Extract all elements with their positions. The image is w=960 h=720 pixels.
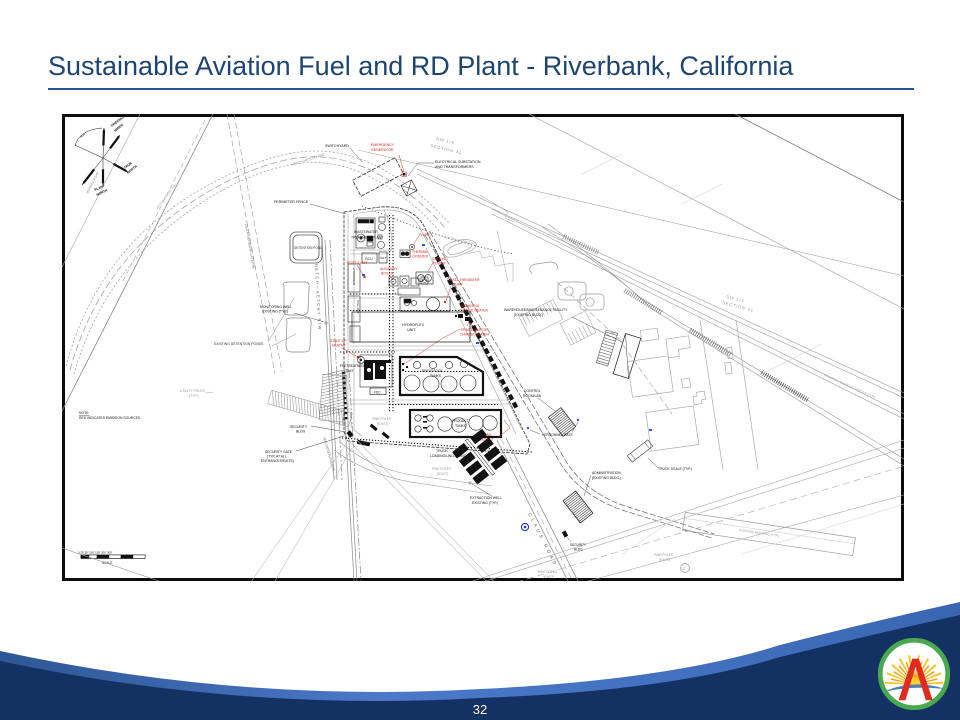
svg-text:COOLING: COOLING	[432, 257, 448, 261]
svg-text:DEWAXING: DEWAXING	[461, 304, 480, 308]
svg-text:PRODUCT: PRODUCT	[452, 419, 469, 423]
svg-text:RO/EDI UNIT: RO/EDI UNIT	[347, 261, 368, 265]
svg-text:SECURITY: SECURITY	[290, 425, 308, 429]
svg-text:SECTION 31: SECTION 31	[430, 143, 463, 155]
svg-text:FLARE: FLARE	[419, 233, 431, 237]
svg-text:UNIT: UNIT	[407, 328, 416, 332]
svg-text:PWR POLES: PWR POLES	[432, 467, 451, 471]
svg-text:ENTRANCES/EXITS): ENTRANCES/EXITS)	[261, 459, 294, 463]
svg-text:HYDROFLEX: HYDROFLEX	[402, 323, 425, 327]
svg-text:ROOM/LAB: ROOM/LAB	[523, 394, 542, 398]
svg-text:EXISTING SIDING (TYP): EXISTING SIDING (TYP)	[444, 235, 476, 245]
svg-text:PERSONNEL GATE: PERSONNEL GATE	[542, 433, 573, 437]
svg-text:SECURITY GATE: SECURITY GATE	[265, 450, 293, 454]
svg-text:VAN DUSEN AVENUE: VAN DUSEN AVENUE	[322, 436, 336, 472]
svg-text:WASTEWATER: WASTEWATER	[354, 230, 378, 234]
svg-text:RED INDICATES EMISSION SOUR: RED INDICATES EMISSION SOURCES.	[79, 416, 141, 420]
svg-text:GENERATOR: GENERATOR	[371, 148, 394, 152]
svg-text:PUMP: PUMP	[453, 283, 464, 287]
svg-text:OXIDIZER: OXIDIZER	[412, 255, 429, 259]
svg-text:(EXIST): (EXIST)	[377, 422, 388, 426]
svg-text:(EXISTING BLDG.): (EXISTING BLDG.)	[592, 476, 621, 480]
svg-text:MONITORING WELL: MONITORING WELL	[260, 305, 292, 309]
svg-text:PERIMETER FENCE: PERIMETER FENCE	[274, 200, 309, 204]
svg-text:SWITCHYARD: SWITCHYARD	[325, 144, 349, 148]
svg-text:UTILITY POLES: UTILITY POLES	[180, 389, 206, 393]
svg-text:TANKS: TANKS	[455, 424, 467, 428]
svg-text:START-UP: START-UP	[330, 339, 347, 343]
svg-text:TRUCK SCALE (TYP.): TRUCK SCALE (TYP.)	[658, 467, 692, 471]
svg-text:(TYP. AT ALL: (TYP. AT ALL	[267, 455, 287, 459]
svg-text:UNIT: UNIT	[346, 369, 353, 373]
svg-text:EXISTING DETENTION PONDS: EXISTING DETENTION PONDS	[214, 342, 264, 346]
svg-text:HEATER: HEATER	[332, 344, 346, 348]
svg-text:BLDG: BLDG	[296, 430, 306, 434]
svg-text:(EXIST): (EXIST)	[437, 472, 448, 476]
svg-text:(TYP.): (TYP.)	[189, 394, 198, 398]
svg-text:AND TRANSFORMERS: AND TRANSFORMERS	[435, 165, 474, 169]
svg-text:NW 1/4: NW 1/4	[436, 136, 455, 145]
svg-text:EXISTING (TYP.): EXISTING (TYP.)	[262, 310, 288, 314]
svg-text:EMERGENCY: EMERGENCY	[371, 143, 395, 147]
svg-text:CHARGE HEATER: CHARGE HEATER	[460, 333, 490, 337]
svg-text:PRETREATMENT: PRETREATMENT	[340, 364, 366, 368]
svg-text:DIESEL FIREWATER: DIESEL FIREWATER	[447, 278, 480, 282]
svg-text:OLD RIVERBANK LATERAL: OLD RIVERBANK LATERAL	[244, 223, 256, 269]
svg-text:TRUCK: TRUCK	[436, 449, 448, 453]
svg-text:0 25' 50' 100' 150' 200: 0 25' 50' 100' 150' 200' 300'	[78, 551, 113, 555]
svg-text:EXISTING RAILROAD TRACKS (TYP.: EXISTING RAILROAD TRACKS (TYP.)	[824, 373, 876, 399]
svg-text:FDC: FDC	[374, 391, 381, 395]
svg-text:FEEDSTOCK: FEEDSTOCK	[422, 369, 443, 373]
svg-text:SGT: SGT	[380, 256, 386, 260]
svg-text:SECURITY: SECURITY	[570, 543, 587, 547]
svg-text:HETCH-HETCHY R/W: HETCH-HETCHY R/W	[291, 152, 326, 167]
svg-text:PWR POLES: PWR POLES	[372, 417, 391, 421]
svg-text:ELECTRICAL SUBSTATION: ELECTRICAL SUBSTATION	[435, 160, 481, 164]
svg-text:THERMAL: THERMAL	[412, 250, 428, 254]
svg-text:CONTROL: CONTROL	[524, 389, 541, 393]
svg-text:PWR POLES: PWR POLES	[654, 553, 673, 557]
svg-text:TREATMENT PLANT: TREATMENT PLANT	[351, 236, 383, 240]
svg-text:BOILER: BOILER	[381, 272, 394, 276]
svg-text:TANKS: TANKS	[430, 374, 442, 378]
svg-text:EXISTING (TYP.): EXISTING (TYP.)	[472, 501, 498, 505]
svg-text:DETENTION POND: DETENTION POND	[294, 246, 323, 250]
svg-text:TOWER: TOWER	[433, 262, 446, 266]
svg-text:(EXISTING BLDG.): (EXISTING BLDG.)	[514, 313, 543, 317]
svg-text:HYDROGEN: HYDROGEN	[352, 268, 356, 285]
svg-text:EXTRACTION WELL: EXTRACTION WELL	[470, 496, 502, 500]
svg-text:NOTE:: NOTE:	[79, 411, 89, 415]
svg-text:BLDG: BLDG	[574, 548, 583, 552]
svg-text:MORRILL ROAD: MORRILL ROAD	[85, 171, 100, 195]
svg-text:WAREHOUSE/MAINTENANCE FACILIT: WAREHOUSE/MAINTENANCE FACILITY	[504, 308, 568, 312]
svg-text:FRACTIONATOR: FRACTIONATOR	[461, 328, 488, 332]
svg-text:ADMINISTRATION: ADMINISTRATION	[592, 471, 621, 475]
